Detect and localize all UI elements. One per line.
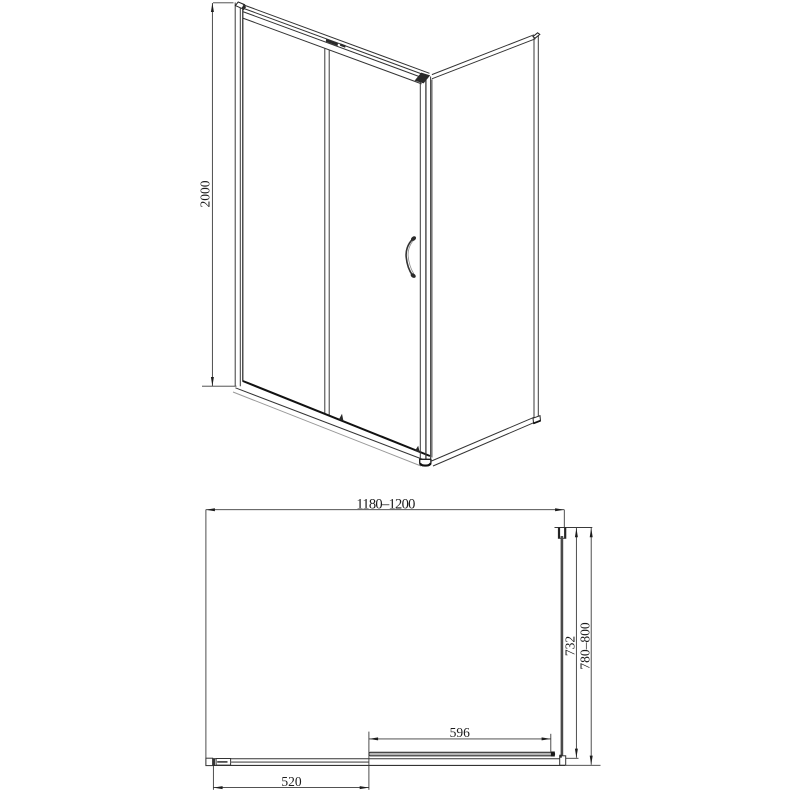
svg-text:520: 520 [281,774,302,789]
svg-text:780–800: 780–800 [577,622,592,670]
svg-text:2000: 2000 [198,180,213,207]
svg-text:732: 732 [563,636,578,656]
svg-text:596: 596 [450,725,471,740]
svg-text:1180–1200: 1180–1200 [356,497,415,513]
